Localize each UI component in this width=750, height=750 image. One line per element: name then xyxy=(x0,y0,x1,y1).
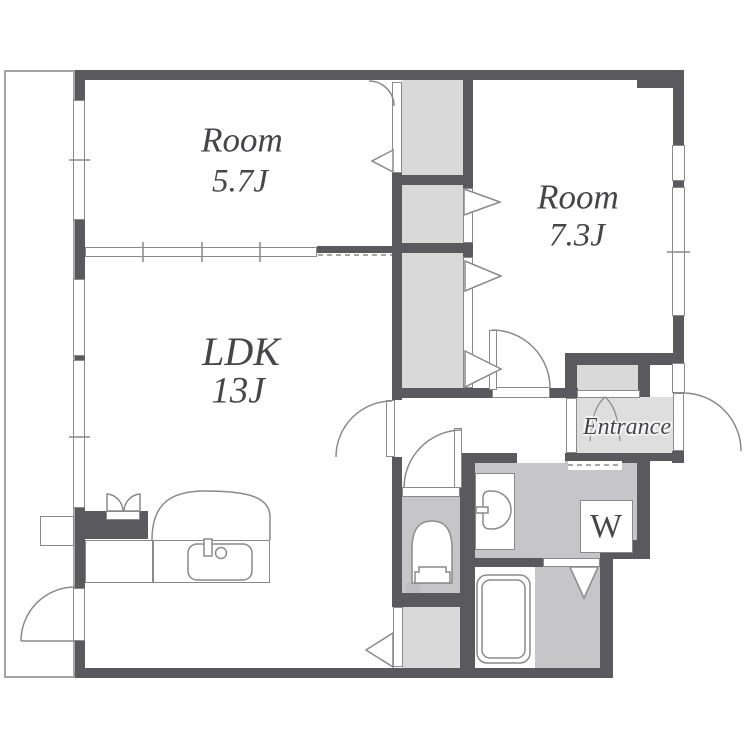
counter-arch xyxy=(152,491,270,540)
room-b-label: Room xyxy=(537,180,619,215)
toilet-door-arc xyxy=(404,430,462,488)
folding-door-icon xyxy=(464,189,500,215)
folding-door-icon xyxy=(366,633,393,667)
entrance-label: Entrance xyxy=(583,415,671,439)
faucet-icon xyxy=(204,539,212,556)
closet-door-arc xyxy=(369,81,394,106)
room-b-door-arc xyxy=(492,330,550,388)
washbasin-handle xyxy=(476,507,488,513)
entrance-door-arc xyxy=(683,393,741,451)
toilet-seat xyxy=(415,567,450,583)
room-a-label: Room xyxy=(201,123,283,158)
room-b-size: 7.3J xyxy=(549,220,605,253)
room-a-size: 5.7J xyxy=(212,166,268,199)
ldk-label: LDK xyxy=(202,332,280,372)
folding-door-icon xyxy=(465,351,501,387)
fixtures-layer xyxy=(0,0,750,750)
partition-ticks xyxy=(143,242,260,262)
double-swing-door-icon xyxy=(107,494,123,511)
bathtub-inner xyxy=(482,580,525,658)
folding-door-icon xyxy=(465,261,501,291)
ldk-size: 13J xyxy=(211,373,264,410)
folding-door-icon xyxy=(372,150,393,172)
folding-door-icon xyxy=(570,567,598,598)
balcony-door-arc xyxy=(21,587,75,641)
hall-door-arc xyxy=(336,401,392,457)
floor-plan: Room 5.7J Room 7.3J LDK 13J Entrance W xyxy=(0,0,750,750)
double-swing-door-icon xyxy=(124,494,140,511)
washing-machine-label: W xyxy=(590,510,622,544)
faucet-knob-icon xyxy=(216,548,227,559)
